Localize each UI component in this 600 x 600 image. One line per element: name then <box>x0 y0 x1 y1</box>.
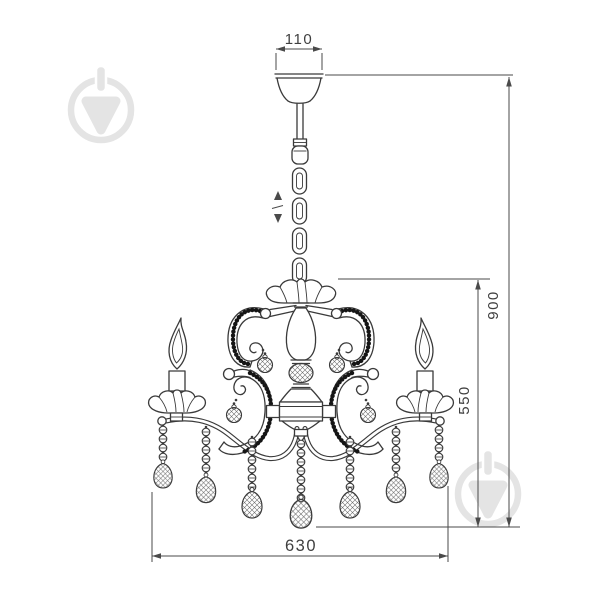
crystal-drop <box>154 460 172 488</box>
mini-crystal-ball <box>227 402 242 422</box>
watermark-top-left-logo-icon <box>71 66 131 140</box>
candle <box>167 318 188 397</box>
lower-scroll <box>219 369 272 455</box>
center-column <box>266 279 335 402</box>
bobeche <box>149 390 206 421</box>
dim-overall-height-label: 900 <box>485 290 502 320</box>
chandelier-dimension-drawing: 110 900 550 630 <box>0 0 600 600</box>
dim-canopy-width-label: 110 <box>285 31 313 48</box>
dim-overall-width-label: 630 <box>285 537 317 555</box>
dimension-canopy-width: 110 <box>276 31 322 70</box>
crystal-drop <box>196 473 215 503</box>
technical-drawing-canvas: 110 900 550 630 <box>0 0 600 600</box>
center-hub <box>267 402 336 440</box>
ceiling-canopy <box>275 74 323 103</box>
bead-strand <box>196 426 215 503</box>
dim-body-height-label: 550 <box>456 385 473 415</box>
mini-crystal-ball <box>258 352 273 372</box>
bead-strand <box>154 425 172 488</box>
center-bead-strand <box>290 440 312 528</box>
crystal-drop <box>290 495 312 528</box>
height-adjust-icon <box>272 191 283 223</box>
chain <box>293 168 307 284</box>
crystal-drop <box>242 488 262 519</box>
hanging-stem <box>292 104 308 164</box>
